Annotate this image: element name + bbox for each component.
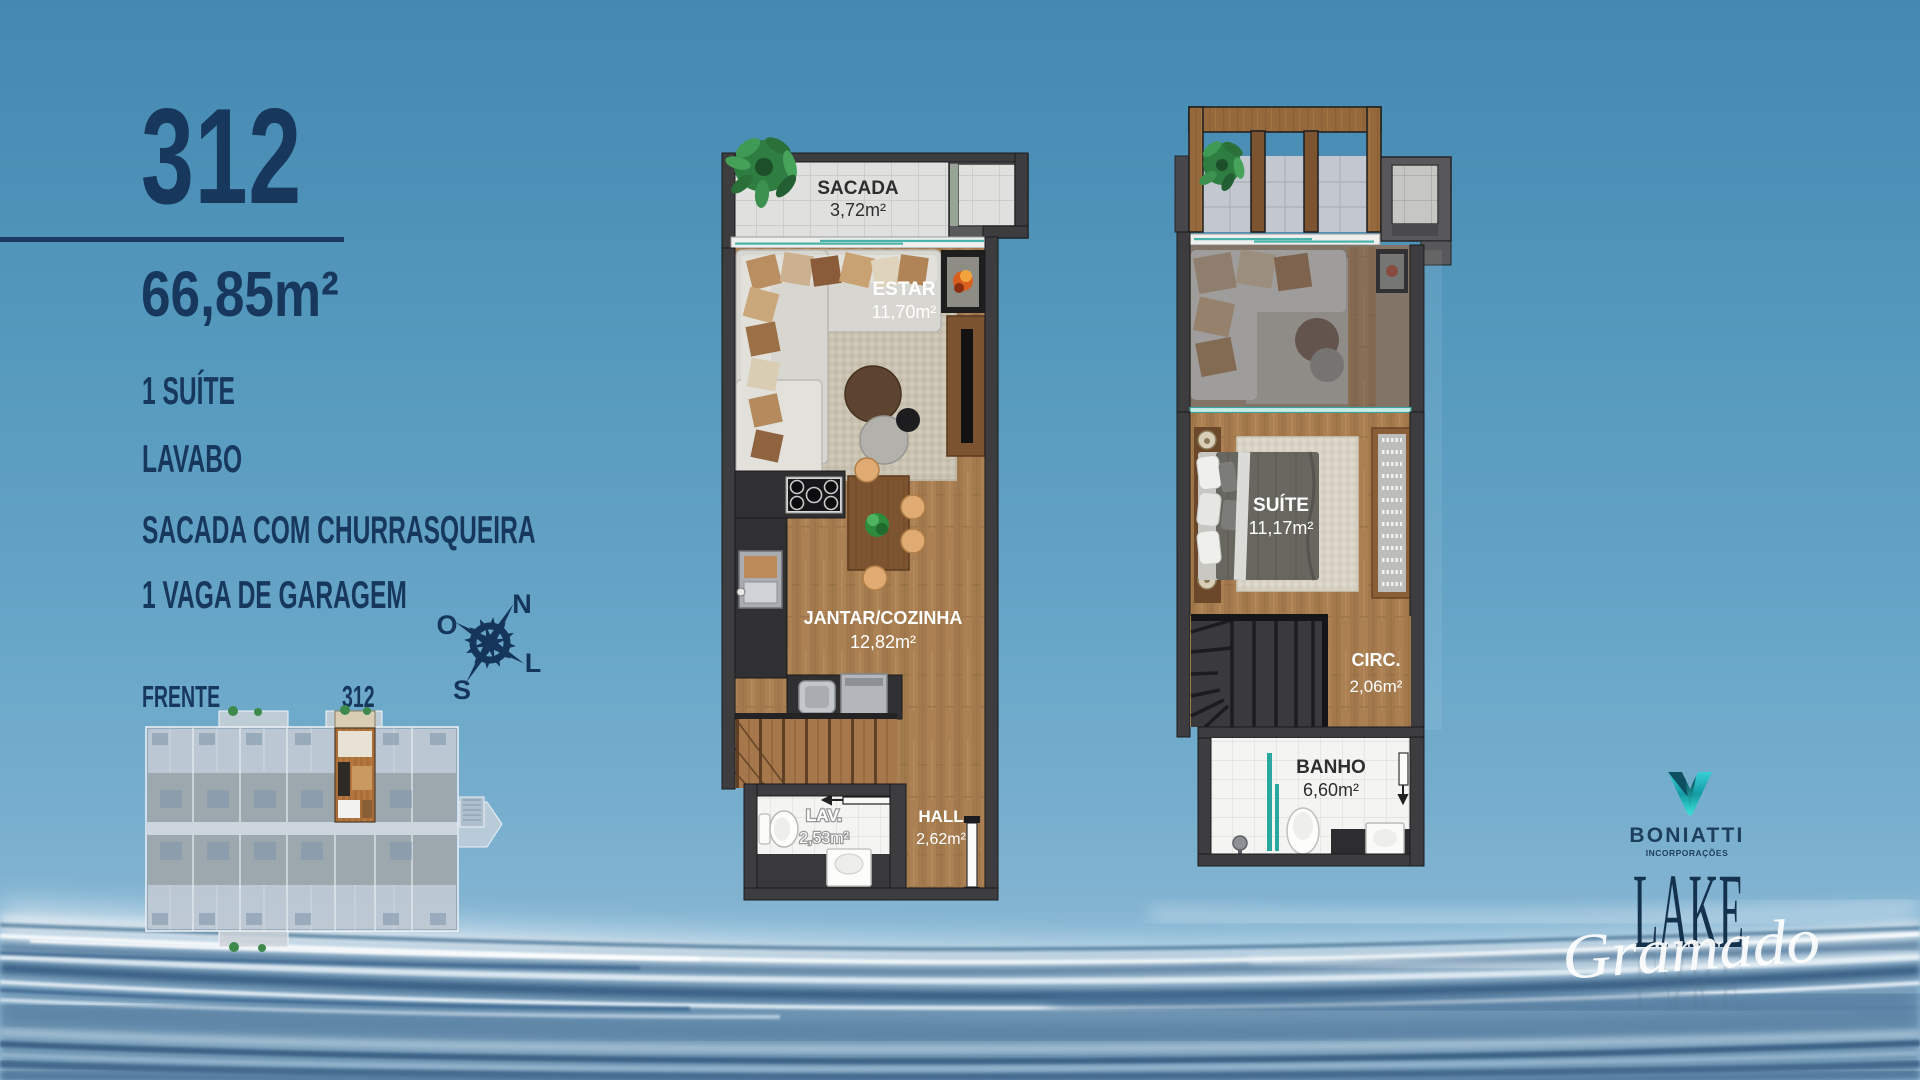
svg-text:HALL: HALL — [918, 807, 963, 826]
svg-text:SACADA: SACADA — [817, 178, 899, 199]
svg-text:L: L — [525, 648, 542, 678]
svg-text:Gramado: Gramado — [1560, 904, 1822, 993]
svg-text:2,62m²: 2,62m² — [916, 831, 966, 848]
svg-text:ESTAR: ESTAR — [873, 279, 936, 300]
svg-text:11,17m²: 11,17m² — [1249, 518, 1314, 538]
svg-text:BONIATTI: BONIATTI — [1629, 824, 1744, 847]
svg-text:SUÍTE: SUÍTE — [1253, 494, 1309, 516]
svg-text:O: O — [436, 610, 457, 640]
svg-text:2,53m²: 2,53m² — [799, 830, 849, 847]
svg-text:6,60m²: 6,60m² — [1303, 780, 1359, 800]
svg-text:JANTAR/COZINHA: JANTAR/COZINHA — [804, 608, 963, 628]
svg-text:11,70m²: 11,70m² — [872, 302, 937, 322]
svg-text:N: N — [512, 589, 532, 619]
svg-text:LAV.: LAV. — [806, 806, 842, 825]
svg-text:CIRC.: CIRC. — [1352, 650, 1401, 670]
svg-text:BANHO: BANHO — [1296, 757, 1366, 778]
svg-text:3,72m²: 3,72m² — [830, 200, 886, 220]
svg-text:12,82m²: 12,82m² — [850, 632, 916, 652]
svg-text:2,06m²: 2,06m² — [1350, 677, 1403, 696]
